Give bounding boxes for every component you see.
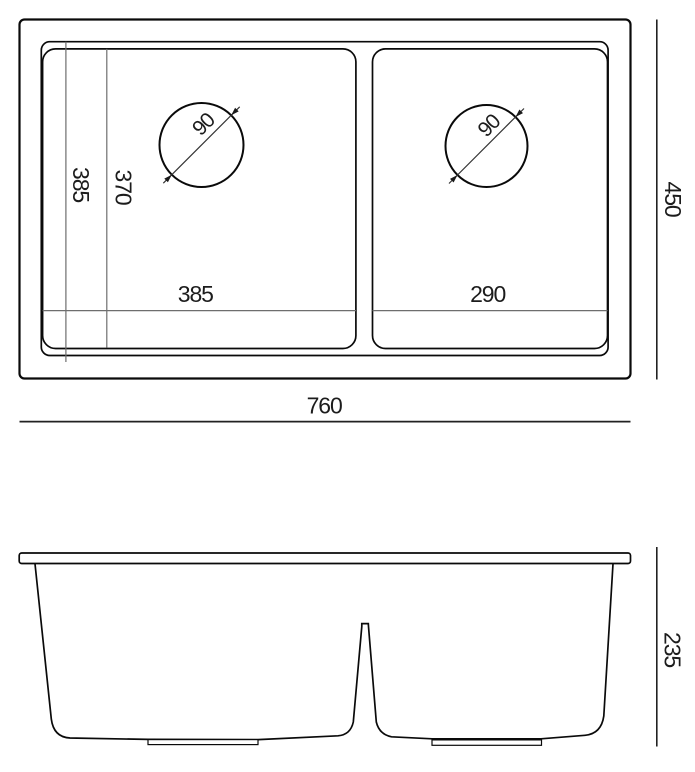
svg-text:450: 450 <box>660 182 686 217</box>
svg-text:235: 235 <box>660 632 686 667</box>
svg-text:385: 385 <box>178 281 213 307</box>
svg-text:370: 370 <box>110 170 136 205</box>
svg-text:760: 760 <box>307 393 342 419</box>
svg-text:290: 290 <box>470 281 505 307</box>
svg-text:385: 385 <box>68 167 94 202</box>
